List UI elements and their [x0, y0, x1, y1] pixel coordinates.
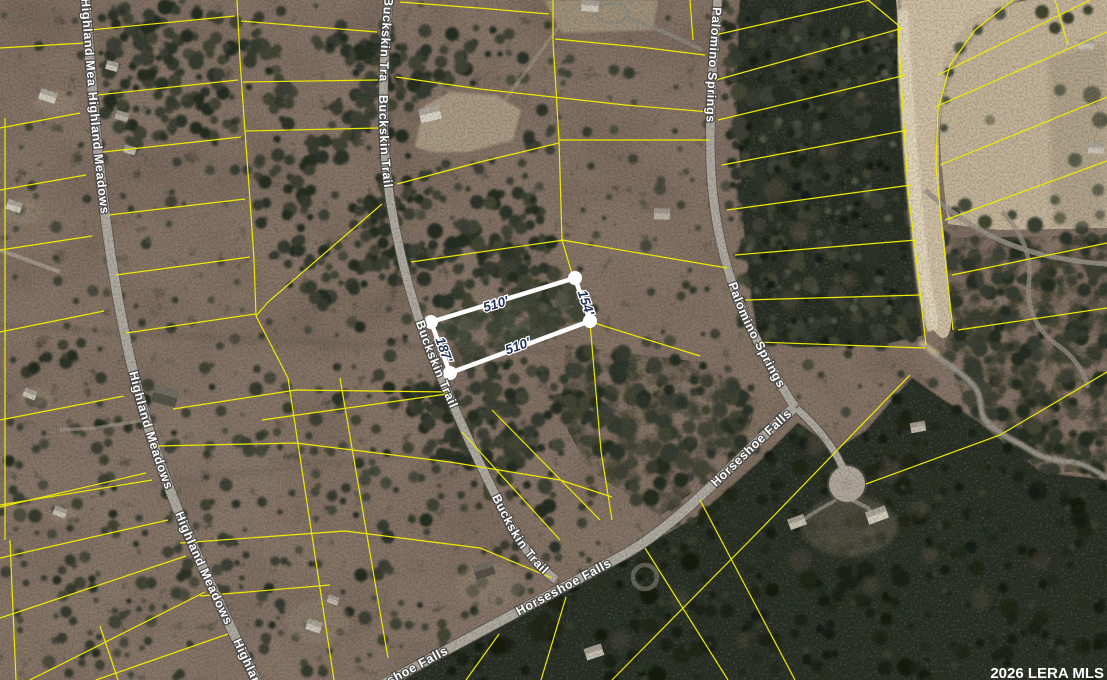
svg-text:2026 LERA MLS: 2026 LERA MLS — [990, 665, 1104, 680]
